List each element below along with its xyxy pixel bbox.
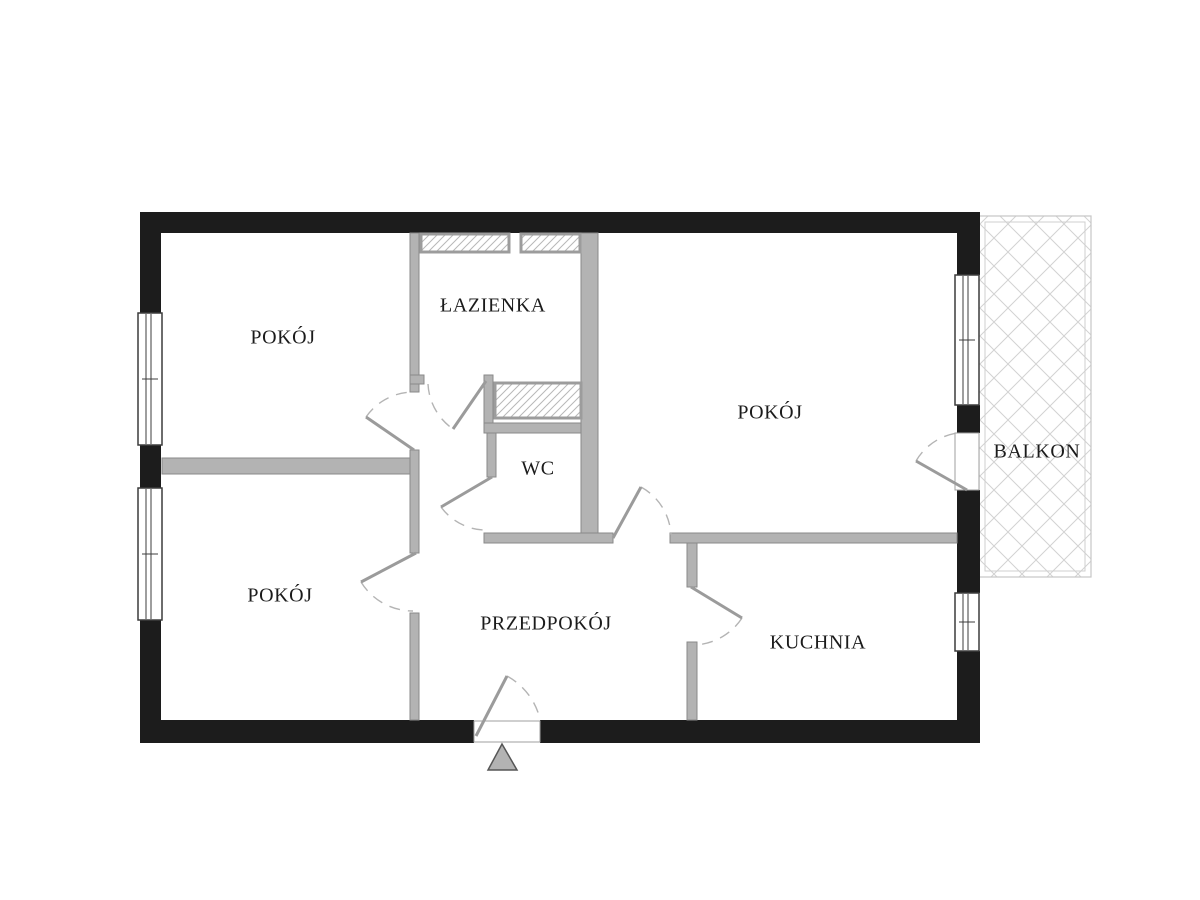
installation-shafts: [421, 234, 581, 418]
wall-right-seg3: [957, 490, 980, 593]
doors: [361, 381, 979, 770]
door-room-bottom-left: [361, 553, 416, 611]
kitchen-left-wall-seg1: [687, 543, 697, 587]
room-label-pokoj-bottom-left: POKÓJ: [247, 585, 312, 608]
door-swing-arc: [641, 487, 671, 535]
door-kitchen: [691, 587, 742, 645]
door-swing-arc: [694, 618, 742, 645]
door-swing-arc: [916, 433, 957, 461]
wc-left-wall: [487, 433, 496, 477]
door-entrance: [474, 676, 540, 770]
hallway-bottom-wall-left: [484, 533, 613, 543]
wall-right-seg2: [957, 405, 980, 433]
wall-left-seg3: [140, 620, 161, 743]
door-leaf: [613, 487, 641, 538]
window-kitchen: [955, 593, 979, 651]
hallway-left-wall-seg3: [410, 613, 419, 720]
door-room-top-left: [366, 392, 414, 450]
bathroom-shaft-2: [521, 234, 580, 252]
hallway-left-wall-seg1: [410, 233, 419, 392]
entrance-opening: [474, 721, 540, 742]
door-leaf: [366, 417, 414, 450]
balcony-floor: [979, 216, 1091, 577]
door-leaf: [453, 381, 486, 429]
door-swing-arc: [361, 582, 413, 611]
wall-left-seg2: [140, 445, 161, 488]
door-balcony: [916, 433, 979, 490]
entrance-arrow-icon: [488, 744, 517, 770]
door-leaf: [691, 587, 742, 618]
door-swing-arc: [507, 676, 540, 719]
door-swing-arc: [366, 392, 412, 417]
window-room-top-left: [138, 313, 162, 445]
door-swing-arc: [441, 507, 489, 530]
window-room-right: [955, 275, 979, 405]
wc-top-wall: [484, 423, 581, 433]
room-label-przedpokoj: PRZEDPOKÓJ: [480, 613, 612, 636]
wall-left-seg1: [140, 212, 161, 313]
wall-bottom-left-of-door: [140, 720, 474, 743]
room-label-kuchnia: KUCHNIA: [770, 632, 866, 655]
outer-walls: [140, 212, 980, 743]
floor-plan: POKÓJ ŁAZIENKA POKÓJ WC POKÓJ PRZEDPOKÓJ…: [0, 0, 1200, 900]
wall-bottom-right-of-door: [540, 720, 980, 743]
room-label-pokoj-top-left: POKÓJ: [250, 327, 315, 350]
room-label-pokoj-right: POKÓJ: [737, 402, 802, 425]
window-room-bottom-left: [138, 488, 162, 620]
wall-right-seg1: [957, 212, 980, 275]
room-label-wc: WC: [521, 458, 554, 481]
left-rooms-divider-wall: [162, 458, 410, 474]
wall-top: [140, 212, 980, 233]
room-label-balkon: BALKON: [994, 441, 1081, 464]
door-leaf: [361, 553, 416, 582]
balcony-area: [979, 216, 1091, 577]
door-wc: [441, 477, 492, 530]
hallway-left-wall-seg2: [410, 450, 419, 553]
bathroom-bottom-wall-stub: [410, 375, 424, 384]
wc-shaft: [495, 383, 581, 418]
door-leaf: [441, 477, 492, 507]
room-label-lazienka: ŁAZIENKA: [440, 295, 546, 318]
door-room-right: [613, 487, 671, 538]
wall-right-seg4: [957, 651, 980, 743]
door-bathroom: [428, 381, 486, 429]
balcony-door-panel: [955, 433, 979, 490]
room-right-bottom-wall: [670, 533, 957, 543]
bathroom-wc-right-wall: [581, 233, 598, 543]
kitchen-left-wall-seg2: [687, 642, 697, 720]
door-swing-arc: [428, 384, 453, 429]
bathroom-shaft-1: [421, 234, 509, 252]
